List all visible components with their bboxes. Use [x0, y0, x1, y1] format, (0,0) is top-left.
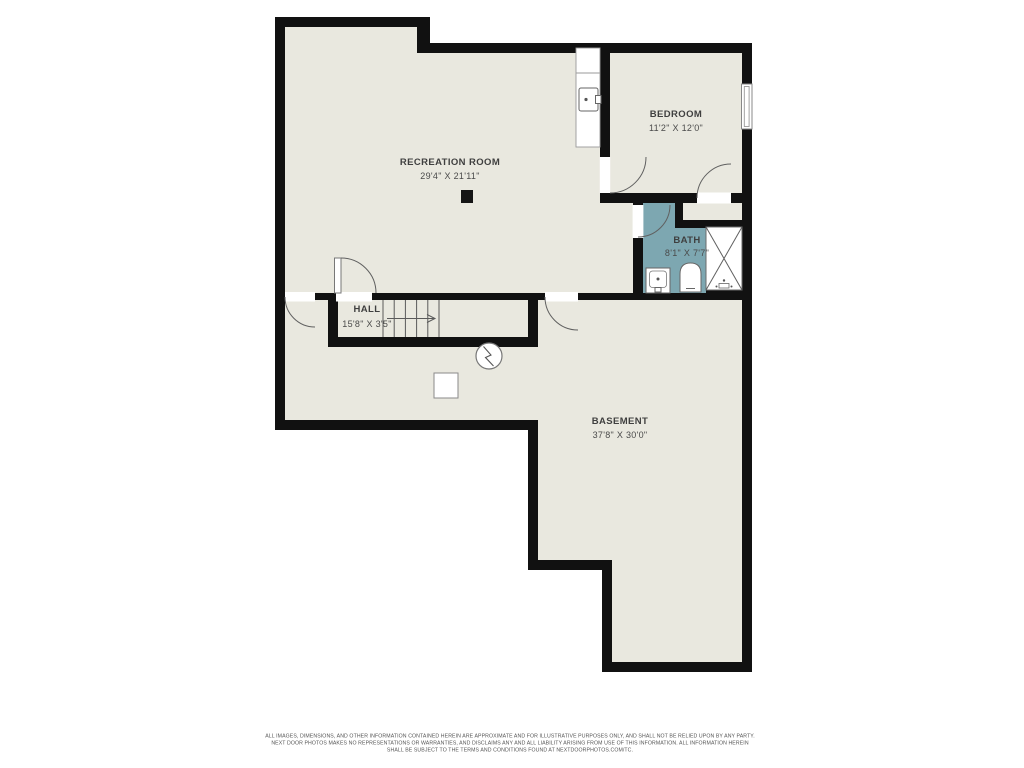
- door-gap-bedroom-closet: [697, 193, 731, 204]
- room-label-bedroom: BEDROOM: [650, 109, 702, 120]
- door-gap-bath: [633, 205, 644, 238]
- utility-sink-icon: [579, 88, 601, 111]
- equipment-square: [434, 373, 458, 398]
- basement-floor: [285, 300, 742, 662]
- door-gap-rec-to-basement-east: [545, 292, 578, 302]
- room-label-basement: BASEMENT: [592, 416, 649, 427]
- disclaimer-line-1: ALL IMAGES, DIMENSIONS, AND OTHER INFORM…: [265, 734, 755, 740]
- door-gap-rec-to-basement-west: [285, 292, 315, 302]
- window: [742, 84, 753, 129]
- disclaimer: ALL IMAGES, DIMENSIONS, AND OTHER INFORM…: [265, 734, 755, 754]
- closet-nook-floor: [683, 203, 742, 220]
- floor-plan: RECREATION ROOM 29'4" X 21'11" BEDROOM 1…: [0, 0, 1024, 768]
- room-dims-hall: 15'8" X 3'5": [342, 319, 391, 329]
- support-column: [461, 190, 473, 203]
- door-gap-bedroom-west: [600, 157, 610, 193]
- room-label-hall: HALL: [354, 304, 381, 315]
- bath-sink-icon: [646, 268, 670, 293]
- disclaimer-line-2: NEXT DOOR PHOTOS MAKES NO REPRESENTATION…: [271, 741, 749, 747]
- shower-with-x-icon: [706, 227, 742, 290]
- toilet-icon: [680, 263, 701, 292]
- room-dims-basement: 37'8" X 30'0": [593, 430, 648, 440]
- room-label-recreation: RECREATION ROOM: [400, 157, 500, 168]
- door-leaf: [335, 258, 342, 293]
- recreation-room-alcove: [600, 203, 633, 293]
- room-dims-recreation: 29'4" X 21'11": [420, 171, 479, 181]
- room-dims-bath: 8'1" X 7'7": [665, 248, 709, 258]
- recreation-room-floor-west: [285, 27, 417, 293]
- smoke-detector-icon: [476, 343, 502, 369]
- floor-plan-page: RECREATION ROOM 29'4" X 21'11" BEDROOM 1…: [0, 0, 1024, 768]
- room-label-bath: BATH: [673, 235, 700, 246]
- room-dims-bedroom: 11'2" X 12'0": [649, 123, 703, 133]
- disclaimer-line-3: SHALL BE SUBJECT TO THE TERMS AND CONDIT…: [387, 748, 633, 754]
